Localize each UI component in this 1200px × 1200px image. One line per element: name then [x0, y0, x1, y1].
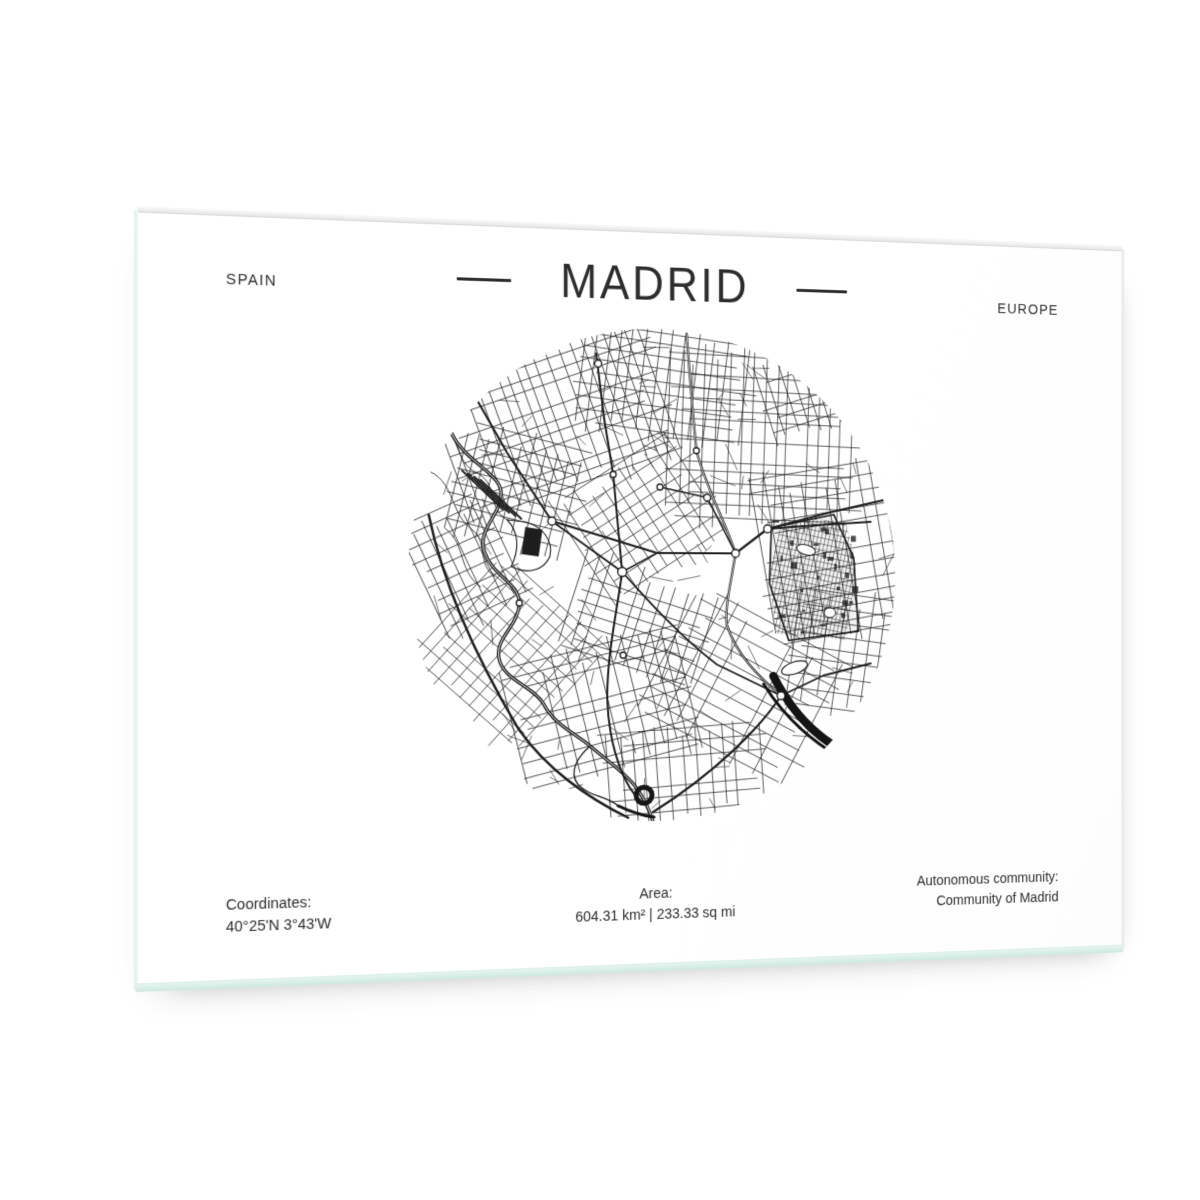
- title-row: MADRID: [138, 242, 1121, 323]
- poster-title: MADRID: [561, 258, 750, 312]
- title-dash-left: [457, 277, 511, 282]
- glass-print-panel: SPAIN MADRID EUROPE Coordinates: 40°25'N…: [138, 213, 1121, 984]
- product-photo-backdrop: SPAIN MADRID EUROPE Coordinates: 40°25'N…: [0, 0, 1200, 1200]
- glass-edge-right: [1122, 249, 1125, 949]
- madrid-street-map: [404, 318, 899, 832]
- community-block: Autonomous community: Community of Madri…: [917, 867, 1059, 912]
- madrid-poster: SPAIN MADRID EUROPE Coordinates: 40°25'N…: [138, 213, 1121, 984]
- street-map-svg: [404, 318, 899, 832]
- continent-label: EUROPE: [997, 300, 1058, 317]
- title-dash-right: [796, 288, 847, 293]
